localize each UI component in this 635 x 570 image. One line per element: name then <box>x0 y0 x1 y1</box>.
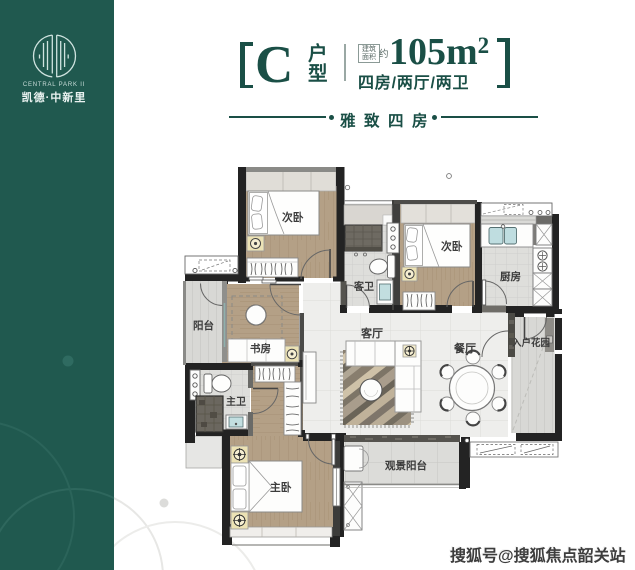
svg-text:餐厅: 餐厅 <box>453 341 476 355</box>
svg-text:观景阳台: 观景阳台 <box>385 459 427 472</box>
svg-text:主卧: 主卧 <box>270 480 292 494</box>
svg-text:阳台: 阳台 <box>193 319 214 332</box>
svg-text:主卫: 主卫 <box>226 395 246 408</box>
svg-text:次卧: 次卧 <box>441 239 463 253</box>
svg-text:书房: 书房 <box>250 342 271 355</box>
svg-text:厨房: 厨房 <box>500 270 521 283</box>
svg-text:客卫: 客卫 <box>353 280 374 293</box>
svg-text:客厅: 客厅 <box>360 326 383 340</box>
svg-text:入户花园: 入户花园 <box>511 337 550 349</box>
svg-text:次卧: 次卧 <box>282 210 304 224</box>
